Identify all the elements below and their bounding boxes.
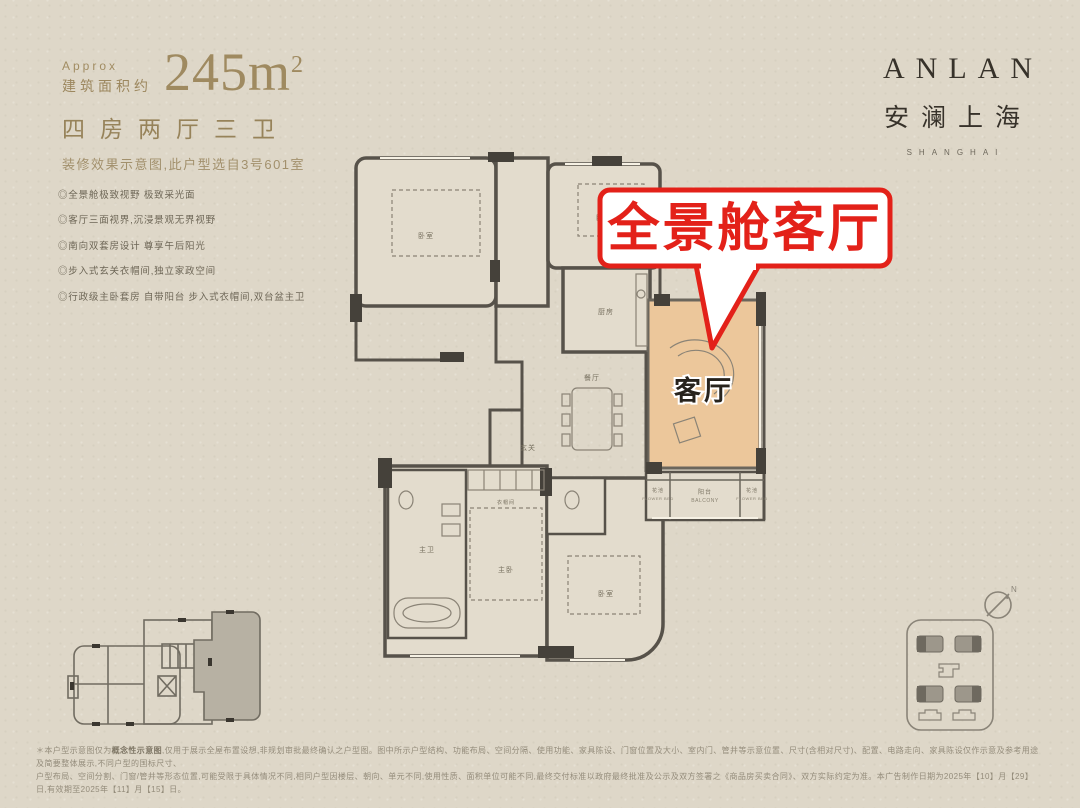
spec-block: Approx 建筑面积约 245m2 四房两厅三卫 装修效果示意图,此户型选自3… — [62, 50, 305, 314]
room-label-cloak: 衣帽间 — [497, 499, 515, 506]
room-label-balcony-en: BALCONY — [691, 498, 719, 504]
brand-name-cn: 安澜上海 — [884, 98, 1032, 134]
area-labels: Approx 建筑面积约 — [62, 59, 152, 96]
room-label-foyer: 玄关 — [520, 443, 536, 452]
area-row: Approx 建筑面积约 245m2 — [62, 50, 305, 96]
room-label-bedroom: 卧室 — [598, 589, 614, 598]
living-room-callout: 全景舱客厅 — [595, 186, 895, 356]
room-label-flowerbed-en: FLOWER BED — [642, 496, 673, 501]
site-amenity — [939, 664, 959, 677]
callout-label: 全景舱客厅 — [606, 199, 882, 258]
room-label-flowerbed-en: FLOWER BED — [736, 496, 767, 501]
room-label-bedroom: 卧室 — [418, 231, 434, 240]
site-blocks — [907, 620, 993, 730]
area-value: 245m2 — [164, 50, 304, 96]
callout-tail-join — [701, 258, 756, 270]
feature-list: ◎全景舱极致视野 极致采光面 ◎客厅三面视界,沉浸景观无界视野 ◎南向双套房设计… — [58, 187, 305, 303]
area-sup: 2 — [291, 52, 304, 78]
disclaimer: ＊本户型示意图仅为概念性示意图,仅用于展示全屋布置设想,非规划审批最终确认之户型… — [36, 744, 1044, 796]
disclaimer-text: ,仅用于展示全屋布置设想,非规划审批最终确认之户型图。图中所示户型结构、功能布局… — [36, 746, 1039, 768]
room-bath2 — [496, 158, 548, 306]
floorplan-poster: Approx 建筑面积约 245m2 四房两厅三卫 装修效果示意图,此户型选自3… — [0, 0, 1080, 808]
brand-name-en: ANLAN — [883, 52, 1032, 86]
disclaimer-text: ＊本户型示意图仅为 — [36, 746, 112, 755]
compass: N — [985, 585, 1017, 618]
layout-line: 四房两厅三卫 — [62, 110, 305, 144]
room-label-living: 客厅 — [674, 375, 734, 406]
disclaimer-line2: 户型布局、空间分割、门窗/管井等形态位置,可能受限于具体情况不同,相同户型因楼层… — [36, 770, 1044, 796]
room-label-flowerbed-cn: 花池 — [746, 487, 758, 494]
compass-north-label: N — [1011, 585, 1017, 594]
feature-item: ◎南向双套房设计 尊享午后阳光 — [58, 238, 305, 252]
disclaimer-line1: ＊本户型示意图仅为概念性示意图,仅用于展示全屋布置设想,非规划审批最终确认之户型… — [36, 744, 1044, 770]
siteplan-diagram: N — [895, 578, 1065, 743]
room-label-dining: 餐厅 — [584, 373, 600, 382]
site-building-outline — [919, 710, 975, 720]
dining-table-icon — [572, 388, 612, 450]
site-building — [917, 636, 981, 702]
feature-item: ◎行政级主卧套房 自带阳台 步入式衣帽间,双台盆主卫 — [58, 289, 305, 303]
keyplan-diagram — [66, 598, 266, 738]
room-bath4 — [547, 478, 605, 534]
feature-item: ◎客厅三面视界,沉浸景观无界视野 — [58, 212, 305, 226]
room-label-balcony-cn: 阳台 — [698, 488, 712, 496]
area-number: 245m — [164, 42, 291, 102]
room-label-master: 主卧 — [498, 565, 514, 574]
room-bedroom2 — [356, 158, 496, 306]
approx-label: Approx — [62, 59, 152, 73]
unit-subtitle: 装修效果示意图,此户型选自3号601室 — [62, 154, 305, 173]
callout-tail — [695, 260, 762, 348]
room-label-flowerbed-cn: 花池 — [652, 487, 664, 494]
feature-item: ◎步入式玄关衣帽间,独立家政空间 — [58, 263, 305, 277]
feature-item: ◎全景舱极致视野 极致采光面 — [58, 187, 305, 201]
brand-logo: ANLAN 安澜上海 SHANGHAI — [872, 52, 1032, 157]
keyplan-unit-highlight — [194, 612, 260, 720]
area-label: 建筑面积约 — [62, 76, 152, 96]
disclaimer-bold: 概念性示意图 — [112, 746, 162, 755]
room-label-master-bath: 主卫 — [419, 545, 435, 554]
brand-city: SHANGHAI — [879, 148, 1032, 157]
keyplan-outline — [68, 620, 212, 724]
